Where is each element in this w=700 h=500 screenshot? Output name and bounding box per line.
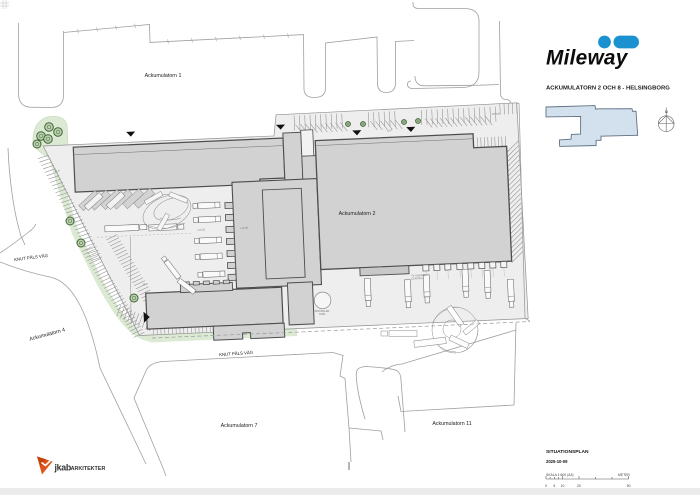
svg-text:BYGN: BYGN bbox=[492, 112, 500, 116]
svg-text:SKALA 1:600 (A3): SKALA 1:600 (A3) bbox=[546, 473, 574, 477]
svg-text:10: 10 bbox=[561, 484, 565, 488]
svg-text:5: 5 bbox=[553, 484, 555, 488]
svg-text:jkab: jkab bbox=[54, 462, 72, 472]
svg-text:Mileway: Mileway bbox=[546, 47, 629, 70]
svg-text:0: 0 bbox=[545, 484, 547, 488]
svg-text:CENTRAL: CENTRAL bbox=[411, 276, 424, 281]
svg-text:SITUATIONSPLAN: SITUATIONSPLAN bbox=[546, 449, 589, 455]
svg-text:Ackumulatorn 7: Ackumulatorn 7 bbox=[221, 423, 258, 429]
svg-text:10 P: 10 P bbox=[387, 128, 393, 132]
svg-text:Ackumulatorn 11: Ackumulatorn 11 bbox=[432, 421, 471, 427]
svg-text:ARKITEKTER: ARKITEKTER bbox=[71, 466, 106, 472]
svg-text:2025-10-09: 2025-10-09 bbox=[546, 459, 568, 464]
svg-text:TANK: TANK bbox=[319, 312, 326, 316]
svg-text:+10,35: +10,35 bbox=[197, 228, 206, 232]
svg-text:20: 20 bbox=[577, 484, 581, 488]
svg-text:+10,45: +10,45 bbox=[240, 226, 249, 230]
svg-text:50: 50 bbox=[627, 484, 631, 488]
svg-text:10 P: 10 P bbox=[54, 169, 60, 173]
svg-text:ACKUMULATORN 2 OCH 8 - HELSING: ACKUMULATORN 2 OCH 8 - HELSINGBORG bbox=[546, 85, 670, 91]
svg-text:16 P: 16 P bbox=[142, 282, 148, 286]
svg-text:Ackumulatorn 1: Ackumulatorn 1 bbox=[145, 73, 182, 79]
svg-text:Ackumulatorn 2: Ackumulatorn 2 bbox=[339, 211, 376, 217]
